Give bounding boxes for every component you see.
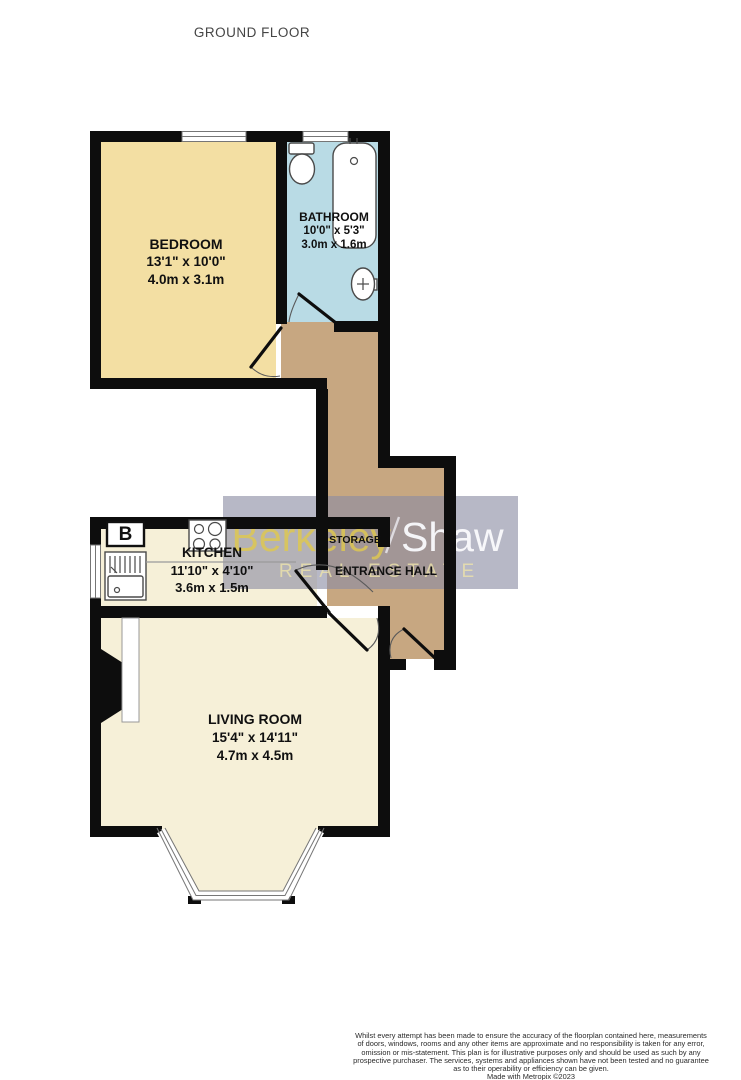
wall-bathroom-stub [334, 321, 378, 332]
boiler-icon: B [107, 522, 144, 546]
wall-living-bottom-left [90, 826, 162, 837]
bedroom-metric: 4.0m x 3.1m [91, 271, 281, 289]
kitchen-label: KITCHEN 11'10" x 4'10" 3.6m x 1.5m [122, 544, 302, 597]
kitchen-imperial: 11'10" x 4'10" [122, 562, 302, 580]
living-room-label: LIVING ROOM 15'4" x 14'11" 4.7m x 4.5m [160, 710, 350, 766]
wall-hall-right [444, 456, 456, 670]
kitchen-window [91, 545, 101, 598]
wall-bathroom-right [378, 131, 390, 456]
boiler-label: B [119, 524, 133, 545]
bedroom-window [182, 132, 246, 142]
toilet-icon [289, 143, 315, 184]
wall-hall-bottom-left [378, 659, 406, 670]
kitchen-name: KITCHEN [122, 544, 302, 562]
bathroom-imperial: 10'0" x 5'3" [282, 225, 386, 239]
floorplan-page: Berkeley Shaw REAL ESTATE [0, 0, 741, 1080]
wall-kitchen-bottom [90, 606, 327, 618]
wall-hall-bottom-corner [434, 650, 456, 670]
fireplace-recess [122, 618, 139, 722]
bathroom-label: BATHROOM 10'0" x 5'3" 3.0m x 1.6m [282, 211, 386, 252]
wall-bedroom-bottom [90, 378, 327, 389]
bathroom-window [303, 132, 348, 142]
bedroom-name: BEDROOM [91, 235, 281, 253]
living-room-imperial: 15'4" x 14'11" [160, 729, 350, 748]
entrance-hall-name: ENTRANCE HALL [306, 565, 466, 578]
page-title: GROUND FLOOR [152, 25, 352, 40]
wall-living-bottom-right [318, 826, 390, 837]
kitchen-metric: 3.6m x 1.5m [122, 579, 302, 597]
footer-disclaimer: Whilst every attempt has been made to en… [331, 1032, 731, 1080]
storage-name: STORAGE [315, 534, 395, 546]
bathroom-name: BATHROOM [282, 211, 386, 225]
attribution-line: Made with Metropix ©2023 [331, 1073, 731, 1080]
living-room-name: LIVING ROOM [160, 710, 350, 729]
bedroom-label: BEDROOM 13'1" x 10'0" 4.0m x 3.1m [91, 235, 281, 289]
entrance-hall-label: ENTRANCE HALL [306, 565, 466, 578]
bathroom-metric: 3.0m x 1.6m [282, 239, 386, 253]
bedroom-imperial: 13'1" x 10'0" [91, 253, 281, 271]
wall-living-right [378, 606, 390, 837]
living-room-metric: 4.7m x 4.5m [160, 747, 350, 766]
storage-label: STORAGE [315, 534, 395, 546]
